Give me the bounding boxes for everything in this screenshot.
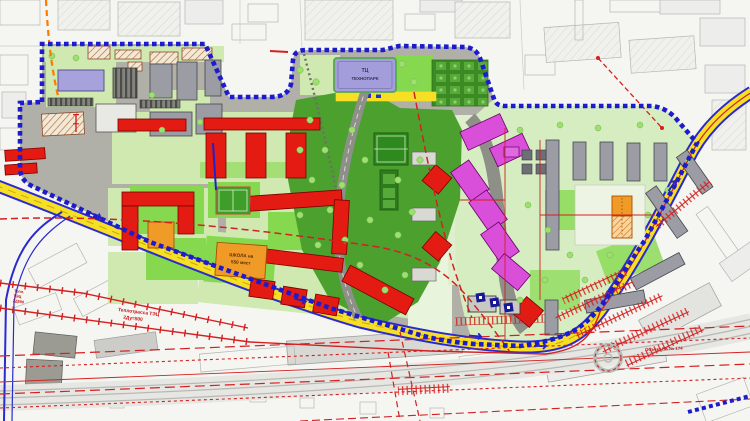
mall-label-2: ТЕХНОПАРК <box>351 76 378 81</box>
garden-plots <box>432 60 488 106</box>
mall-label-1: ТЦ <box>362 68 369 74</box>
mall-building: ТЦ ТЕХНОПАРК <box>334 58 396 92</box>
courtyard-sport-field <box>216 187 250 214</box>
parking-structure <box>113 68 137 98</box>
school-building: ШКОЛА на 550 мест <box>215 242 267 278</box>
park-sport-field <box>374 133 408 165</box>
violet-industrial-building <box>58 70 104 91</box>
mall-street <box>336 92 436 101</box>
master-plan-map: ШКОЛА на 550 мест ТЦ ТЕХНОПАРК <box>0 0 750 421</box>
plan-canvas: ШКОЛА на 550 мест ТЦ ТЕХНОПАРК <box>0 0 750 421</box>
